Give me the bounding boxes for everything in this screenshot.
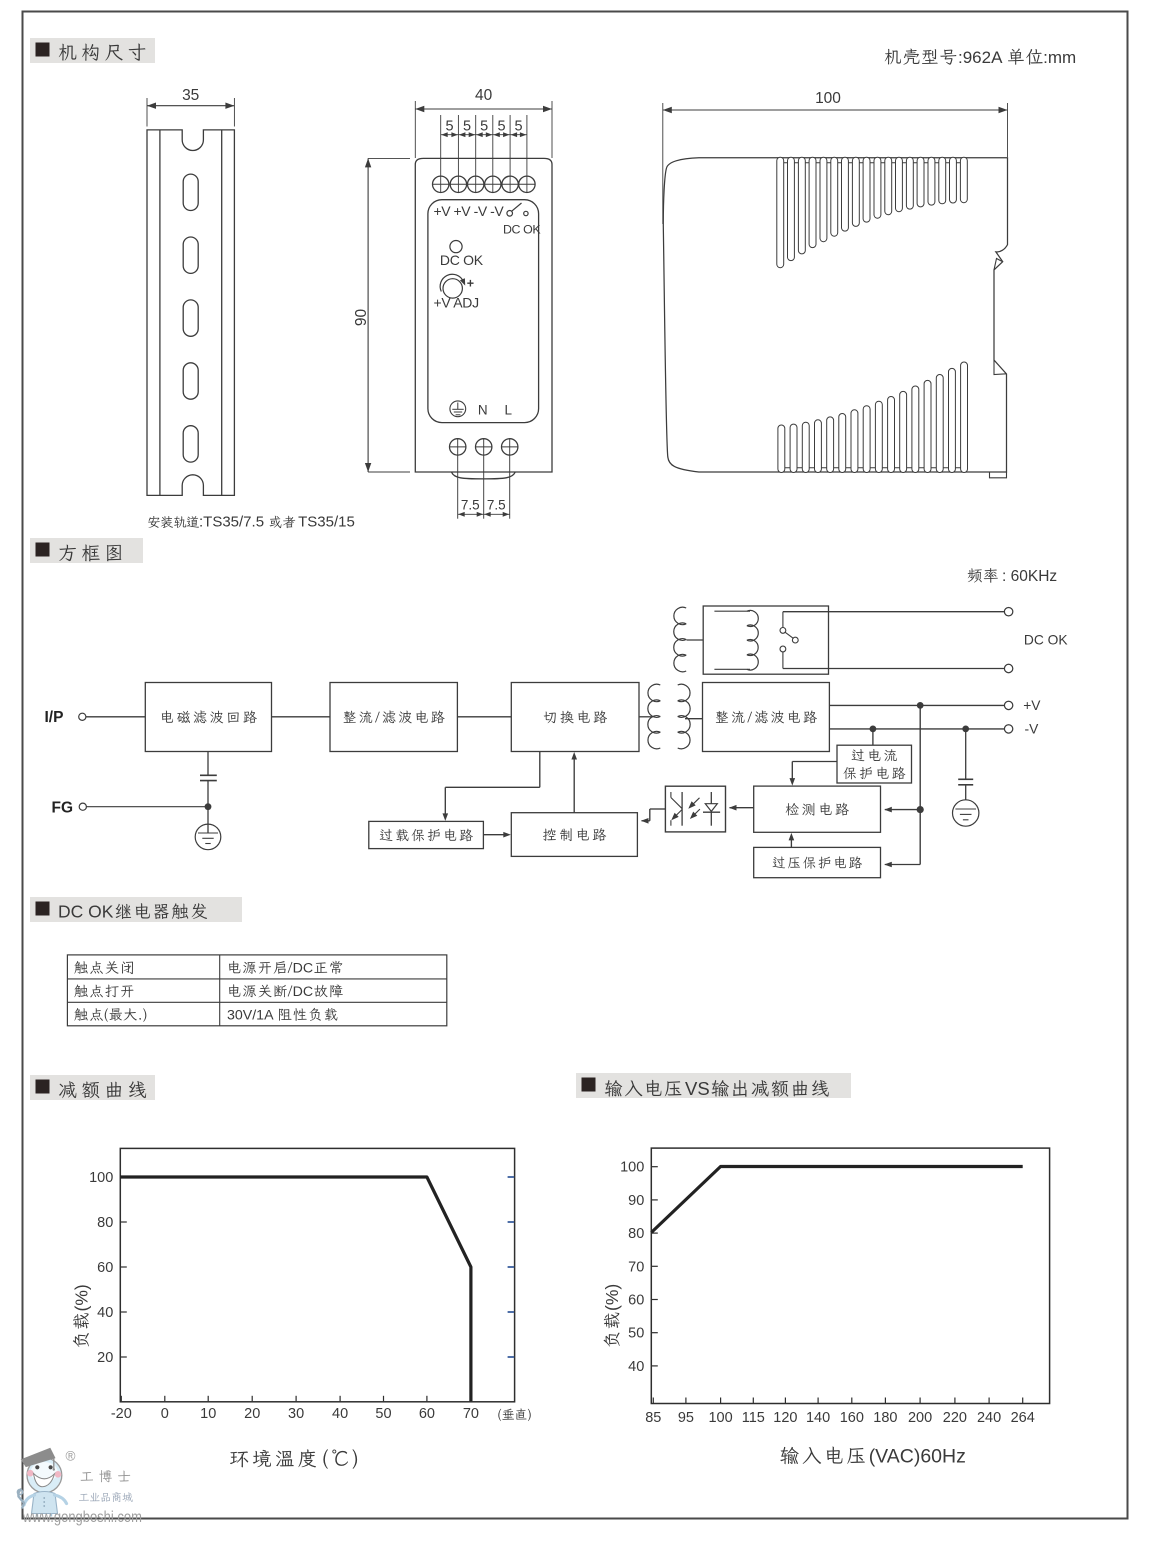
svg-text:100: 100 xyxy=(708,1410,732,1426)
svg-text:40: 40 xyxy=(475,87,493,104)
svg-text:80: 80 xyxy=(628,1226,644,1242)
svg-text:50: 50 xyxy=(628,1326,644,1342)
svg-text:I/P: I/P xyxy=(45,709,64,726)
svg-text:TS35/15: TS35/15 xyxy=(298,514,355,531)
svg-text:40: 40 xyxy=(332,1406,348,1422)
svg-text:70: 70 xyxy=(463,1406,479,1422)
svg-text:200: 200 xyxy=(908,1410,932,1426)
svg-text:20: 20 xyxy=(97,1350,113,1366)
svg-text:7.5: 7.5 xyxy=(461,497,480,512)
svg-text:100: 100 xyxy=(815,90,841,107)
svg-text:L: L xyxy=(504,402,512,417)
svg-text:DC: DC xyxy=(293,961,314,977)
svg-text::TS35/7.5: :TS35/7.5 xyxy=(199,514,264,531)
svg-text:60: 60 xyxy=(97,1260,113,1276)
svg-text:180: 180 xyxy=(873,1410,897,1426)
svg-text:10: 10 xyxy=(200,1406,216,1422)
svg-text:50: 50 xyxy=(375,1406,391,1422)
svg-text::mm: :mm xyxy=(1043,48,1076,67)
svg-text:140: 140 xyxy=(806,1410,830,1426)
svg-text:95: 95 xyxy=(678,1410,694,1426)
svg-text:100: 100 xyxy=(89,1170,113,1186)
svg-text:+V +V -V -V: +V +V -V -V xyxy=(434,203,505,219)
svg-text:DC OK: DC OK xyxy=(1024,633,1068,648)
svg-text:40: 40 xyxy=(628,1359,644,1375)
svg-text:-V: -V xyxy=(1025,721,1040,736)
svg-text:®: ® xyxy=(66,1449,76,1464)
svg-text:VS: VS xyxy=(685,1078,710,1099)
svg-text:160: 160 xyxy=(840,1410,864,1426)
svg-text:60: 60 xyxy=(628,1293,644,1309)
svg-text:DC: DC xyxy=(293,984,314,1000)
svg-text:100: 100 xyxy=(620,1160,644,1176)
svg-text:115: 115 xyxy=(742,1410,765,1426)
svg-text:5: 5 xyxy=(497,119,505,135)
svg-text:60: 60 xyxy=(419,1406,435,1422)
svg-text:220: 220 xyxy=(943,1410,967,1426)
svg-text:: 60KHz: : 60KHz xyxy=(1002,568,1057,585)
svg-text:(VAC)60Hz: (VAC)60Hz xyxy=(869,1446,966,1468)
svg-text:70: 70 xyxy=(628,1259,644,1275)
svg-text:0: 0 xyxy=(161,1406,169,1422)
svg-text:5: 5 xyxy=(480,119,488,135)
svg-text:+: + xyxy=(467,277,474,291)
svg-text::962A: :962A xyxy=(958,48,1003,67)
svg-text:DC OK: DC OK xyxy=(440,252,484,268)
svg-text:80: 80 xyxy=(97,1215,113,1231)
svg-text:+V ADJ: +V ADJ xyxy=(434,294,479,310)
svg-text:90: 90 xyxy=(628,1193,644,1209)
svg-text:40: 40 xyxy=(97,1305,113,1321)
svg-text:www.gongboshi.com: www.gongboshi.com xyxy=(22,1509,142,1526)
svg-text:(%): (%) xyxy=(71,1284,91,1311)
svg-text:DC OK: DC OK xyxy=(58,902,114,922)
svg-text:7.5: 7.5 xyxy=(487,497,506,512)
svg-text:240: 240 xyxy=(977,1410,1001,1426)
svg-text:5: 5 xyxy=(463,119,471,135)
svg-text:FG: FG xyxy=(52,800,74,817)
svg-text:20: 20 xyxy=(244,1406,260,1422)
svg-text:+V: +V xyxy=(1023,698,1041,713)
svg-text:30: 30 xyxy=(288,1406,304,1422)
svg-text:35: 35 xyxy=(182,87,199,104)
svg-text:30V/1A: 30V/1A xyxy=(227,1008,274,1024)
svg-text:264: 264 xyxy=(1011,1410,1035,1426)
svg-text:120: 120 xyxy=(773,1410,797,1426)
svg-text:5: 5 xyxy=(514,119,522,135)
svg-text:(%): (%) xyxy=(602,1284,622,1311)
svg-text:-20: -20 xyxy=(111,1406,132,1422)
svg-text:DC OK: DC OK xyxy=(503,223,541,237)
svg-text:90: 90 xyxy=(353,309,370,327)
svg-text:N: N xyxy=(478,402,488,417)
svg-text:85: 85 xyxy=(645,1410,661,1426)
svg-text:5: 5 xyxy=(445,119,453,135)
